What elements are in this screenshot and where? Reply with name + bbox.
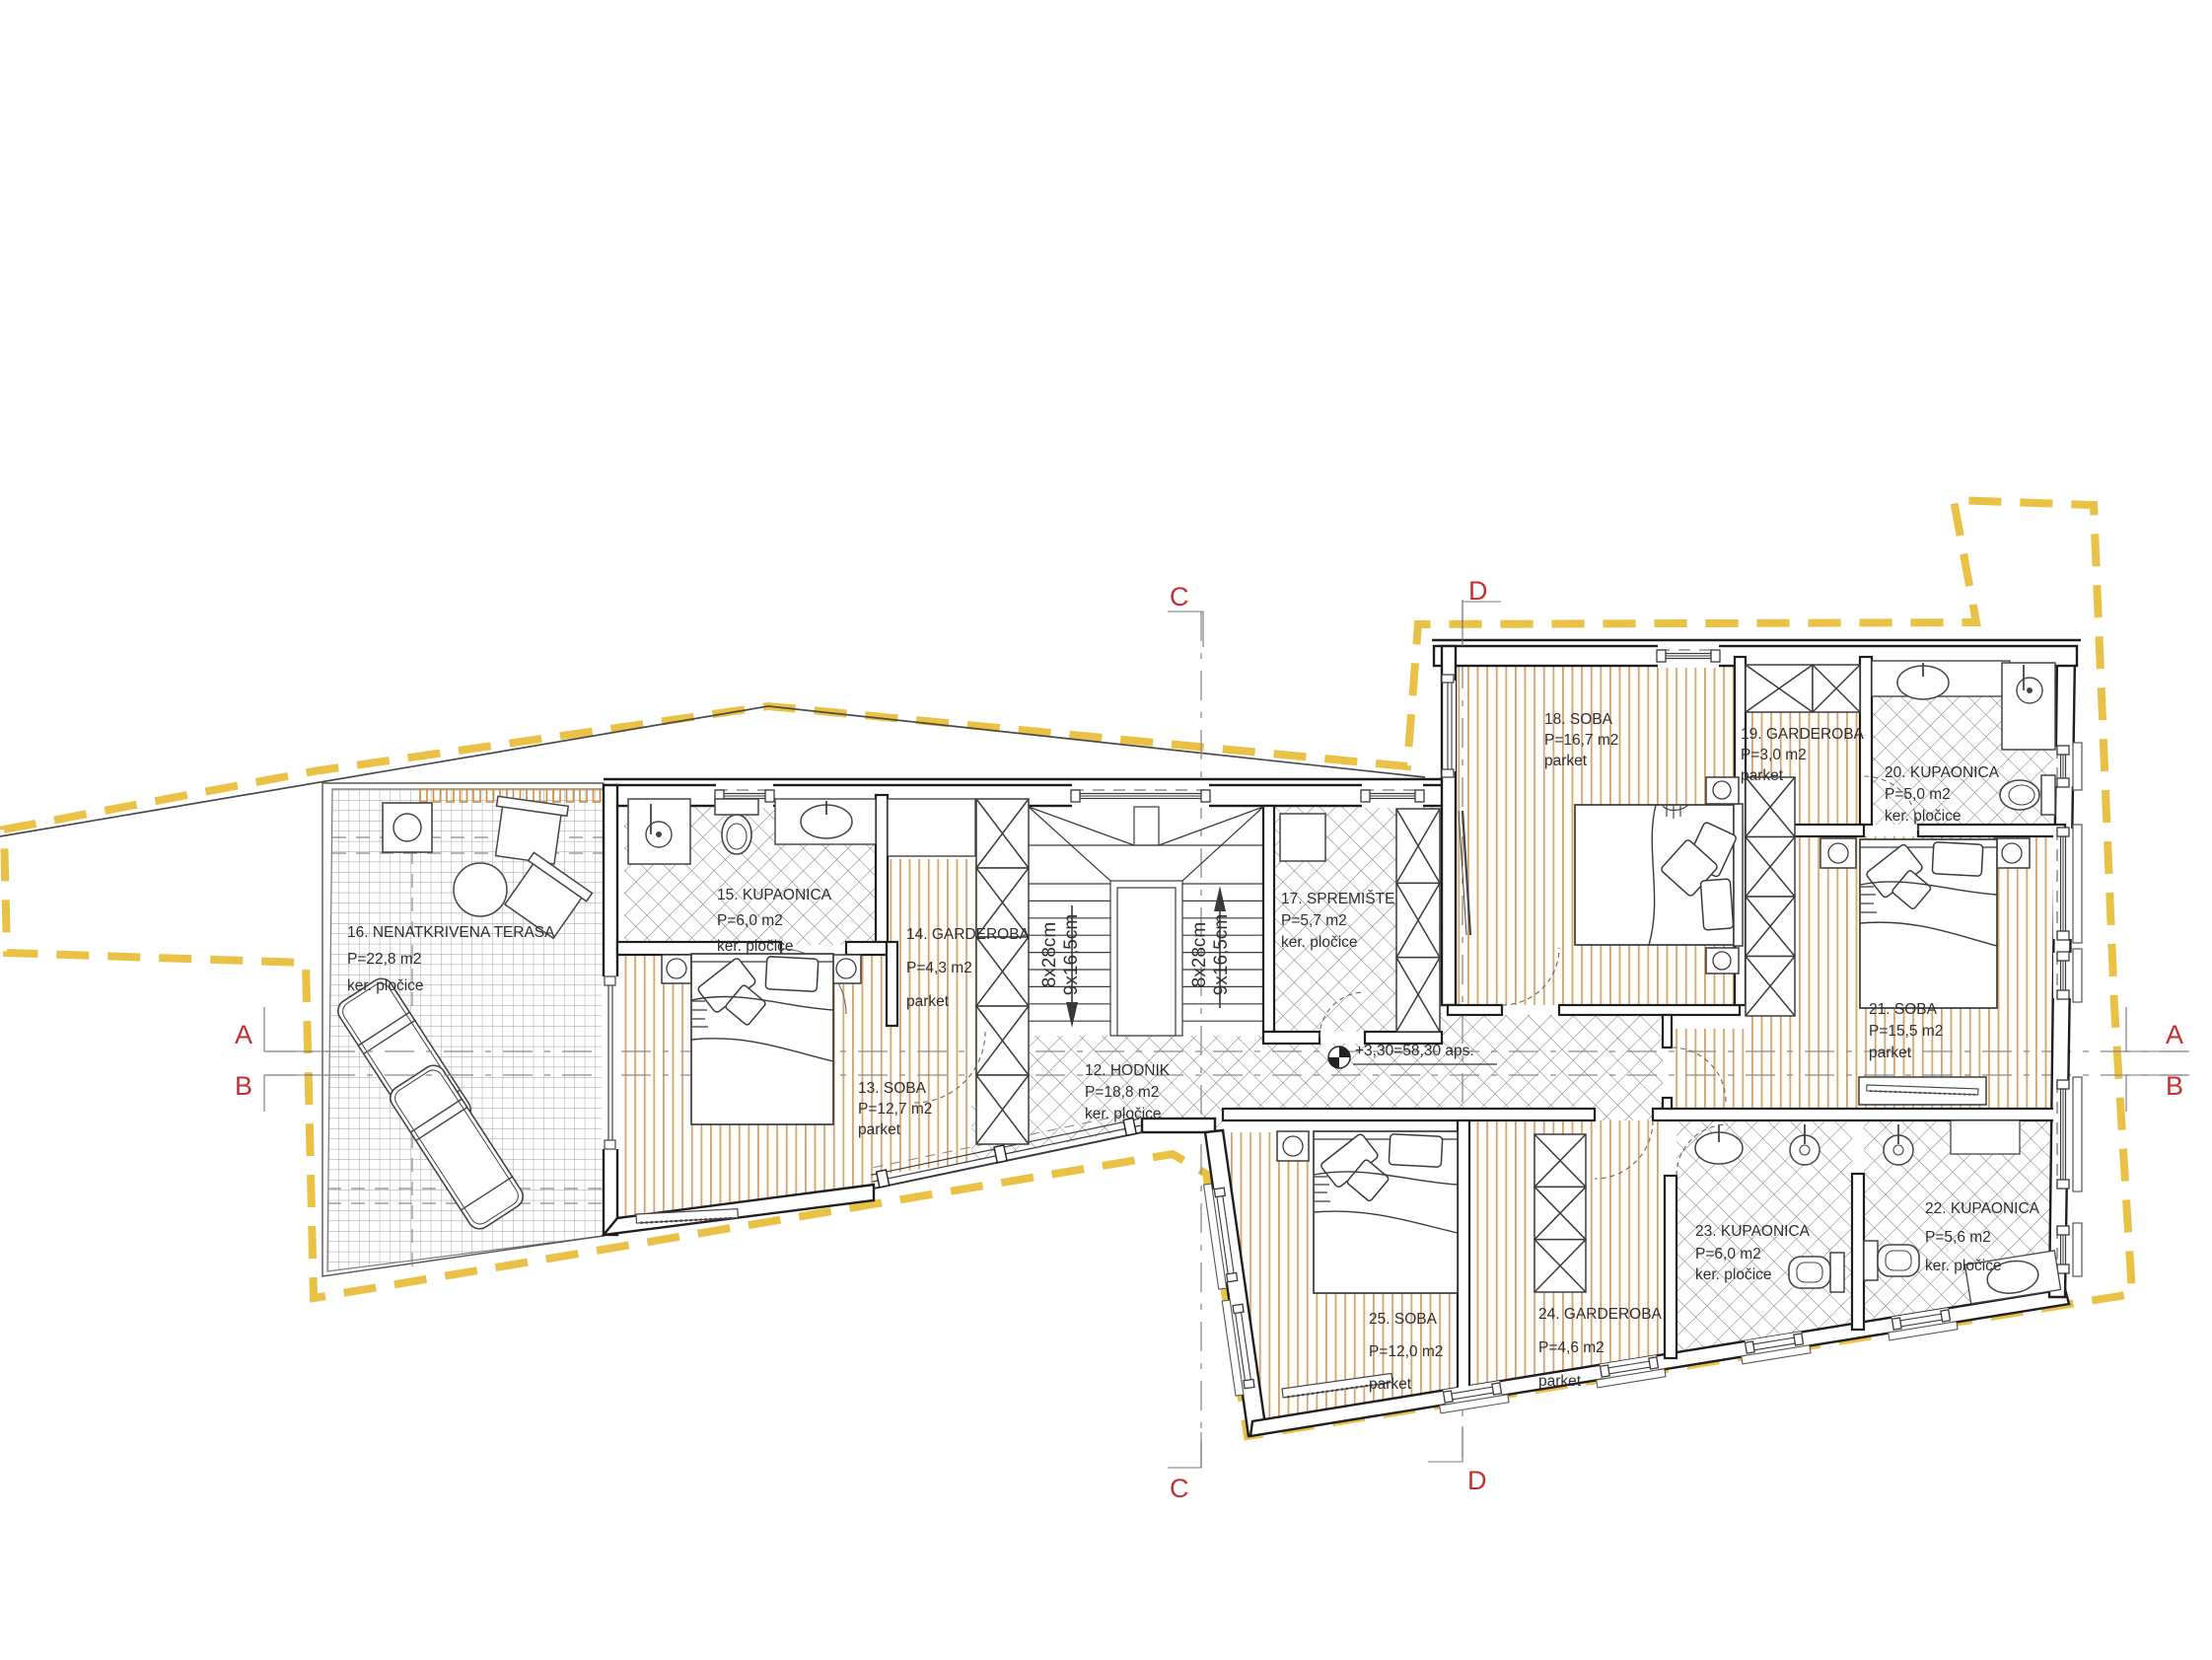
svg-text:parket: parket [1869, 1045, 1912, 1061]
svg-text:18. SOBA: 18. SOBA [1544, 711, 1613, 728]
svg-text:21. SOBA: 21. SOBA [1869, 1001, 1938, 1018]
svg-text:P=16,7 m2: P=16,7 m2 [1544, 732, 1618, 749]
svg-text:parket: parket [1544, 753, 1588, 769]
svg-text:ker. pločice: ker. pločice [347, 977, 424, 994]
svg-text:P=12,7 m2: P=12,7 m2 [858, 1101, 932, 1118]
svg-text:parket: parket [1538, 1373, 1582, 1390]
svg-text:8x28cm: 8x28cm [1189, 922, 1210, 988]
svg-text:P=4,3 m2: P=4,3 m2 [906, 960, 972, 976]
svg-text:A: A [2166, 1020, 2183, 1049]
svg-text:C: C [1170, 1474, 1189, 1503]
svg-text:A: A [235, 1020, 252, 1049]
svg-text:24. GARDEROBA: 24. GARDEROBA [1538, 1306, 1663, 1323]
svg-text:D: D [1467, 1466, 1487, 1495]
svg-text:P=15,5 m2: P=15,5 m2 [1869, 1023, 1943, 1040]
svg-text:ker. pločice: ker. pločice [1085, 1106, 1162, 1122]
svg-text:+3,30=58,30 aps.: +3,30=58,30 aps. [1355, 1043, 1474, 1059]
svg-text:ker. pločice: ker. pločice [1885, 808, 1962, 825]
svg-text:P=6,0 m2: P=6,0 m2 [1695, 1246, 1761, 1263]
svg-text:P=12,0 m2: P=12,0 m2 [1369, 1343, 1443, 1360]
svg-text:P=5,6 m2: P=5,6 m2 [1925, 1229, 1991, 1246]
svg-text:parket: parket [906, 993, 950, 1010]
svg-text:P=6,0 m2: P=6,0 m2 [717, 912, 783, 929]
svg-text:ker. pločice: ker. pločice [1925, 1258, 2002, 1274]
svg-text:ker. pločice: ker. pločice [1281, 934, 1358, 951]
svg-text:parket: parket [1369, 1376, 1412, 1393]
svg-text:P=22,8 m2: P=22,8 m2 [347, 951, 421, 968]
svg-text:12. HODNIK: 12. HODNIK [1085, 1062, 1171, 1079]
svg-text:P=18,8 m2: P=18,8 m2 [1085, 1084, 1159, 1101]
svg-text:15. KUPAONICA: 15. KUPAONICA [717, 887, 832, 903]
svg-text:14. GARDEROBA: 14. GARDEROBA [906, 926, 1031, 943]
svg-text:8x28cm: 8x28cm [1039, 922, 1060, 988]
svg-text:16. NENATKRIVENA TERASA: 16. NENATKRIVENA TERASA [347, 924, 555, 941]
svg-text:25. SOBA: 25. SOBA [1369, 1311, 1438, 1328]
svg-text:ker. pločice: ker. pločice [1695, 1266, 1772, 1283]
svg-text:P=5,0 m2: P=5,0 m2 [1885, 786, 1951, 803]
svg-text:parket: parket [858, 1121, 901, 1138]
svg-text:P=3,0 m2: P=3,0 m2 [1741, 747, 1807, 763]
svg-text:23. KUPAONICA: 23. KUPAONICA [1695, 1223, 1811, 1240]
svg-text:22. KUPAONICA: 22. KUPAONICA [1925, 1200, 2040, 1217]
svg-text:P=5,7 m2: P=5,7 m2 [1281, 912, 1347, 929]
svg-text:parket: parket [1741, 767, 1784, 784]
svg-text:P=4,6 m2: P=4,6 m2 [1538, 1339, 1605, 1356]
svg-text:9x16,5cm: 9x16,5cm [1211, 914, 1232, 995]
svg-text:C: C [1170, 582, 1189, 612]
svg-text:B: B [235, 1071, 252, 1101]
svg-text:9x16,5cm: 9x16,5cm [1061, 914, 1082, 995]
svg-text:19. GARDEROBA: 19. GARDEROBA [1741, 726, 1865, 743]
svg-text:17. SPREMIŠTE: 17. SPREMIŠTE [1281, 891, 1394, 907]
svg-text:ker. pločice: ker. pločice [717, 938, 794, 955]
svg-text:20. KUPAONICA: 20. KUPAONICA [1885, 764, 2000, 781]
svg-text:13. SOBA: 13. SOBA [858, 1080, 927, 1097]
